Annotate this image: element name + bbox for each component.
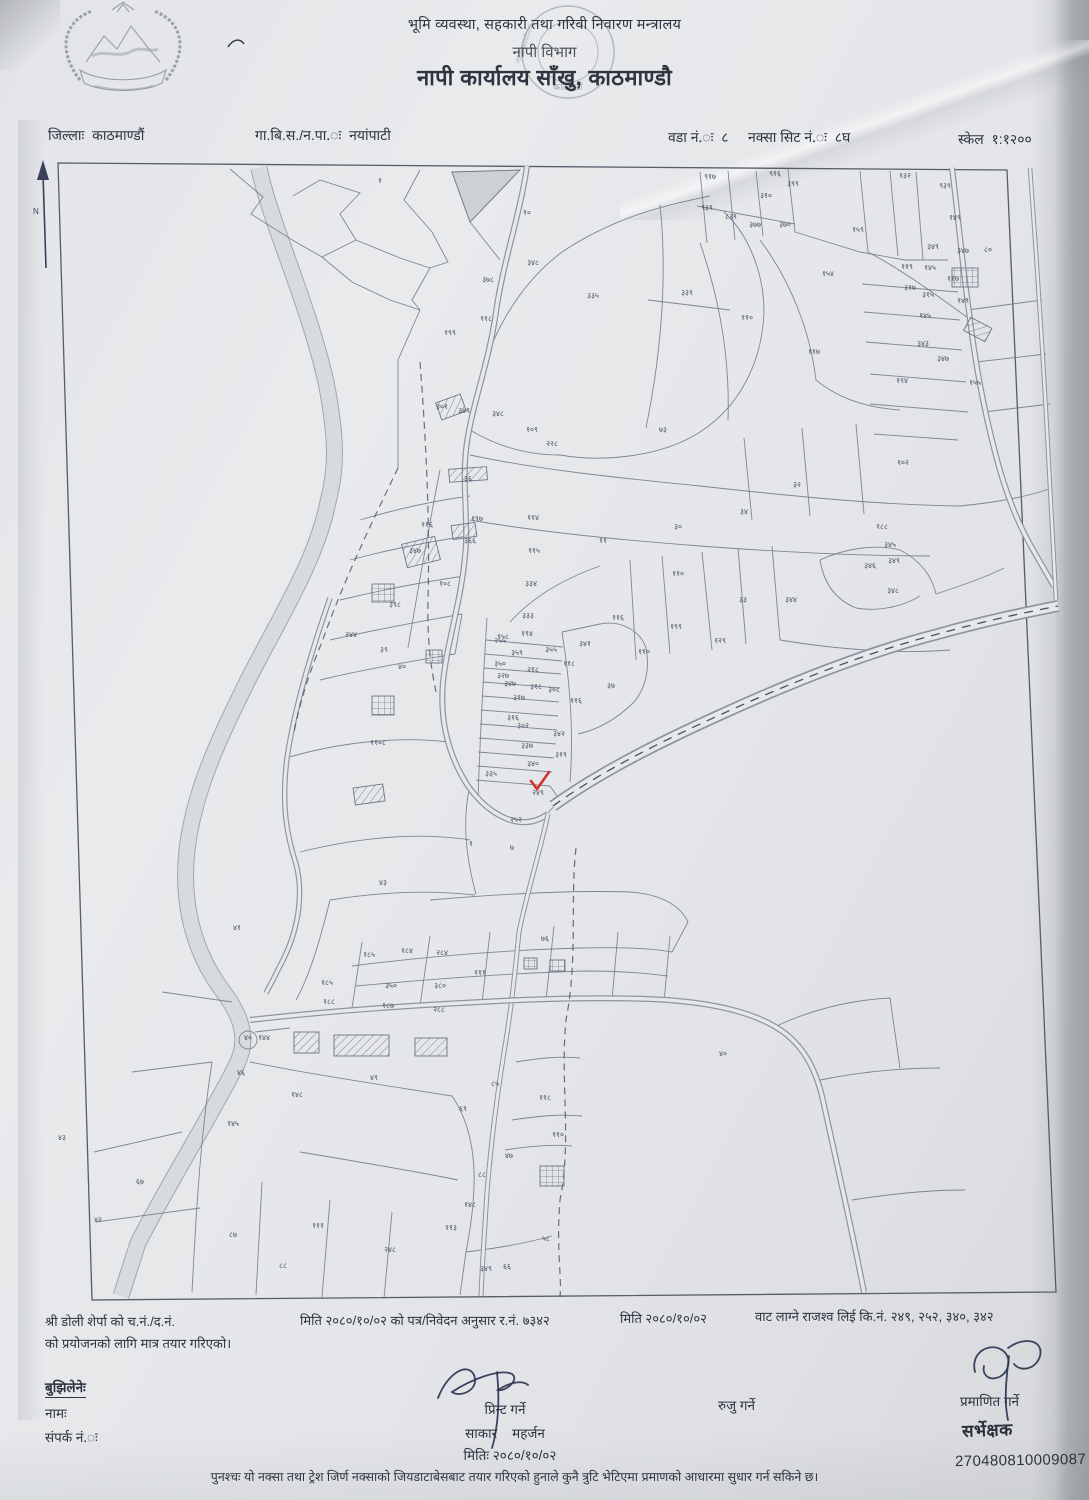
shaded-parcel xyxy=(452,170,520,222)
parcel-number: ९३९ xyxy=(939,181,951,190)
parcel-number: ५८ xyxy=(542,1234,550,1243)
department-title: नापी विभाग xyxy=(0,42,1089,62)
scale-value: १:१२०० xyxy=(991,131,1031,147)
note-seg2: मिति २०८०/१०/०२ को पत्र/निवेदन अनुसार र.… xyxy=(300,1311,550,1329)
parcel-number: १४५ xyxy=(924,263,936,272)
parcel-number: १४४ xyxy=(258,1033,270,1042)
parcel-number: १८८ xyxy=(876,522,888,531)
parcel-number: ३४ xyxy=(740,507,748,516)
ministry-title: भूमि व्यवस्था, सहकारी तथा गरिवी निवारण म… xyxy=(0,14,1089,34)
parcel-number: ३१५ xyxy=(922,290,934,299)
parcel-number: ३९९ xyxy=(787,179,799,188)
district-value: काठमाण्डौं xyxy=(92,127,144,143)
parcel-number: ४३ xyxy=(379,878,387,887)
parcel-number: २२८ xyxy=(546,439,558,448)
parcel-number: ३३५ xyxy=(485,769,497,778)
svg-text:N: N xyxy=(33,207,39,216)
surveyor-stamp: सर्भेक्षक xyxy=(962,1417,1013,1442)
parcel-number: ४० xyxy=(398,662,406,671)
parcel-number: ३१८ xyxy=(530,682,542,691)
parcel-number: ८८ xyxy=(279,1261,287,1270)
parcel-number: ३४९ xyxy=(480,1264,492,1273)
parcel-number: ४० xyxy=(719,1049,727,1058)
parcel-number: १९९ xyxy=(444,328,456,337)
parcel-number: ४२ xyxy=(94,1215,102,1224)
scale-label: स्केल १:१२०० xyxy=(958,130,1032,149)
parcel-number: १९९ xyxy=(670,622,682,631)
parcel-number: १४८ xyxy=(291,1090,303,1099)
parcel-number: ३४७ xyxy=(409,546,421,555)
district-key: जिल्लाः xyxy=(48,127,84,143)
red-checkmark xyxy=(531,772,549,789)
office-title: नापी कार्यालय साँखु, काठमाण्डौ xyxy=(0,62,1089,92)
parcel-number: ३७० xyxy=(779,220,791,229)
parcel-number: ७६ xyxy=(541,934,549,943)
parcel-number: ३९८ xyxy=(389,600,401,609)
parcel-number: ३३९ xyxy=(681,288,693,297)
parcel-number: १५५ xyxy=(969,378,981,387)
parcel-number: ९१७ xyxy=(704,172,716,181)
parcel-number: ११४ xyxy=(527,513,539,522)
parcel-number: ३९ xyxy=(380,645,388,654)
parcel-number: ११६ xyxy=(612,613,624,622)
check-by-label: रुजु गर्ने xyxy=(718,1396,755,1414)
parcel-number: १३२ xyxy=(899,171,911,180)
parcel-number: ६९ xyxy=(459,1104,467,1113)
parcel-number: ३४८ xyxy=(492,409,504,418)
parcel-number: ३४९ xyxy=(888,556,900,565)
parcel-number: १०९ xyxy=(526,425,538,434)
parcel-number: ३०२ xyxy=(517,721,529,730)
parcel-number: १११ xyxy=(312,1221,324,1230)
parcel-number: ४० xyxy=(244,1033,252,1042)
parcel-number: २४४ xyxy=(345,630,357,639)
district-label: जिल्लाः काठमाण्डौं xyxy=(48,126,144,145)
parcel-number: ३४२ xyxy=(553,729,565,738)
parcel-number: १८८ xyxy=(323,997,335,1006)
parcel-number: ३६६ xyxy=(464,536,476,545)
parcel-number: ३७७ xyxy=(749,220,761,229)
parcel-number: ३४० xyxy=(527,759,539,768)
vdc-key: गा.बि.स./न.पा.ः xyxy=(255,127,341,143)
parcel-number: ३४७ xyxy=(957,246,969,255)
parcel-lines xyxy=(94,169,1052,1298)
parcel-number: २५५ xyxy=(494,636,506,645)
parcel-labels: ११०९१७९१६३९९३१०९३९८३९३७७३७०१५९१३२९३९१४९१… xyxy=(58,169,992,1273)
parcel-number: ३५० xyxy=(385,981,397,990)
parcel-number: ३१७ xyxy=(904,283,916,292)
parcel-number: ३५९ xyxy=(511,648,523,657)
parcel-number: ३०८ xyxy=(548,685,560,694)
parcel-number: ११८ xyxy=(539,1093,551,1102)
parcel-number: १२९ xyxy=(714,636,726,645)
parcel-number: ३७८ xyxy=(482,275,494,284)
parcel-number: ३४१ xyxy=(579,639,591,648)
parcel-number: १४५ xyxy=(919,311,931,320)
parcel-number: ३३४ xyxy=(525,579,537,588)
parcel-number: ३२ xyxy=(793,480,801,489)
parcel-number: ३४६ xyxy=(864,561,876,570)
parcel-number: ३३३ xyxy=(522,611,534,620)
parcel-number: ३३ xyxy=(739,595,747,604)
parcel-number: ११० xyxy=(552,1130,564,1139)
parcel-number: ३४३ xyxy=(917,339,929,348)
parcel-number: ७ xyxy=(510,843,514,852)
parcel-number: २८८ xyxy=(433,1005,445,1014)
scanned-cadastral-map-page: काठमाडौं नापी कार्यालय N xyxy=(0,0,1089,1500)
note-seg1: श्री डोली शेर्पा को च.नं./द.नं. xyxy=(45,1312,175,1330)
print-by-label: प्रिन्ट गर्ने xyxy=(430,1400,580,1418)
scale-key: स्केल xyxy=(958,131,984,147)
parcel-number: ११०८ xyxy=(370,738,386,747)
vdc-label: गा.बि.स./न.पा.ः नयांपाटी xyxy=(255,126,391,145)
parcel-number: ३१९ xyxy=(555,750,567,759)
parcel-number: ३६ xyxy=(464,474,472,483)
parcel-number: १४९ xyxy=(949,213,961,222)
parcel-number: ६६ xyxy=(503,1262,511,1271)
footer-note: पुनश्चः यो नक्सा तथा ट्रेश जिर्ण नक्साको… xyxy=(0,1468,1029,1485)
parcel-number: ४१ xyxy=(233,923,241,932)
ward-label: वडा नं.ः ८ xyxy=(668,128,729,147)
certify-by-label: प्रमाणित गर्ने xyxy=(960,1392,1019,1410)
parcel-number: १९७ xyxy=(471,514,483,523)
parcel-number: १४९ xyxy=(957,296,969,305)
parcel-number: ४७ xyxy=(505,1151,513,1160)
parcel-number: ३४७ xyxy=(937,354,949,363)
parcel-number: ११७ xyxy=(808,347,820,356)
print-date: मितिः २०८०/१०/०२ xyxy=(420,1446,600,1464)
parcel-number: ७३ xyxy=(659,425,667,434)
parcel-number: ९१६ xyxy=(769,169,781,178)
parcel-number: २४८ xyxy=(384,1245,396,1254)
parcel-number: १४५ xyxy=(227,1119,239,1128)
note-seg4: वाट लाग्ने राजश्व लिई कि.नं. २४९, २५२, ३… xyxy=(755,1307,993,1325)
parcel-number: ३३७ xyxy=(521,741,533,750)
parcel-number: २१८ xyxy=(527,665,539,674)
parcel-number: ३१० xyxy=(760,191,772,200)
parcel-number: ८७ xyxy=(229,1230,237,1239)
parcel-number: १० xyxy=(523,208,531,217)
parcel-number: १८४ xyxy=(401,946,413,955)
parcel-number: ४३ xyxy=(58,1133,66,1142)
parcel-number: ३० xyxy=(674,522,682,531)
parcel-number: १८५ xyxy=(321,978,333,987)
parcel-number: ९३९ xyxy=(701,203,713,212)
parcel-number: ३४७ xyxy=(504,679,516,688)
highway-centerline xyxy=(553,606,1058,806)
roads xyxy=(250,166,1058,1296)
parcel-number: ३४५ xyxy=(884,540,896,549)
parcel-number: १९४ xyxy=(521,629,533,638)
parcel-number: ११ xyxy=(599,536,607,545)
parcel-number: ३५० xyxy=(494,659,506,668)
parcel-number: ३८० xyxy=(434,981,446,990)
parcel-number: ३४४ xyxy=(785,595,797,604)
parcel-number: २५२ xyxy=(510,815,522,824)
parcel-number: १०८ xyxy=(439,579,451,588)
parcel-number: १५९ xyxy=(852,225,864,234)
printer-name: साकार महर्जन xyxy=(415,1424,595,1442)
parcel-number: ८८ xyxy=(478,1170,486,1179)
parcel-number: १ xyxy=(378,176,382,185)
parcel-number: ४९ xyxy=(370,1073,378,1082)
parcel-number: ११६ xyxy=(421,520,433,529)
parcel-number: ११६ xyxy=(570,696,582,705)
parcel-number: १५४ xyxy=(822,269,834,278)
parcel-number: ६७ xyxy=(136,1177,144,1186)
parcel-number: ११५ xyxy=(528,546,540,555)
parcel-number: १८७ xyxy=(382,1001,394,1010)
ward-key: वडा नं.ः xyxy=(668,129,713,145)
printer-first-name: साकार xyxy=(465,1426,497,1441)
parcel-number: १९४ xyxy=(896,376,908,385)
printer-last-name: महर्जन xyxy=(512,1426,545,1441)
parcel-number: ३७ xyxy=(607,681,615,690)
parcel-number: ११० xyxy=(638,647,650,656)
parcel-number: ३४८ xyxy=(527,258,539,267)
note-seg3: मिति २०८०/१०/०२ xyxy=(620,1309,707,1327)
parcel-number: ३४८ xyxy=(887,586,899,595)
parcel-number: ३१७ xyxy=(513,693,525,702)
parcel-number: २८४ xyxy=(436,948,448,957)
parcel-number: ३०१ xyxy=(436,402,448,411)
receiver-name-label: नामः xyxy=(45,1404,67,1422)
sheet-value: ८घ xyxy=(835,129,851,145)
sheet-label: नक्सा सिट नं.ः ८घ xyxy=(748,128,850,147)
parcel-number: १०२ xyxy=(897,458,909,467)
parcel-number: ८३९ xyxy=(725,212,737,221)
parcel-number: ८५ xyxy=(491,1079,499,1088)
sheet-key: नक्सा सिट नं.ः xyxy=(748,129,827,145)
map-canvas: काठमाडौं नापी कार्यालय N xyxy=(0,0,1089,1500)
parcel-number: ४६ xyxy=(237,1068,245,1077)
vdc-value: नयांपाटी xyxy=(349,127,391,143)
parcel-number: १४८ xyxy=(464,1200,476,1209)
parcel-number: १ xyxy=(469,839,473,848)
parcel-number: ३३५ xyxy=(587,291,599,300)
parcel-number: ३४९ xyxy=(927,242,939,251)
parcel-number: ३५५ xyxy=(545,645,557,654)
parcel-number: ११० xyxy=(672,569,684,578)
parcel-number: १८५ xyxy=(363,950,375,959)
ward-value: ८ xyxy=(721,129,728,145)
parcel-number: ११७ xyxy=(947,274,959,283)
parcel-number: ११३ xyxy=(445,1223,457,1232)
receiver-heading: बुझिलेनेः xyxy=(45,1378,86,1398)
parcel-number: ८० xyxy=(984,245,992,254)
receiver-contact-label: संपर्क नं.ः xyxy=(45,1428,98,1446)
north-arrow: N xyxy=(33,160,49,268)
parcel-number: ११८ xyxy=(480,314,492,323)
parcel-number: ११० xyxy=(741,313,753,322)
note-line2: को प्रयोजनको लागि मात्र तयार गरिएको। xyxy=(45,1334,231,1352)
parcel-number: ३४९ xyxy=(458,406,470,415)
parcel-number: २४९ xyxy=(532,788,544,797)
parcel-number: १११ xyxy=(474,968,486,977)
parcel-number: ११९ xyxy=(901,262,913,271)
parcel-number: ११८ xyxy=(563,659,575,668)
